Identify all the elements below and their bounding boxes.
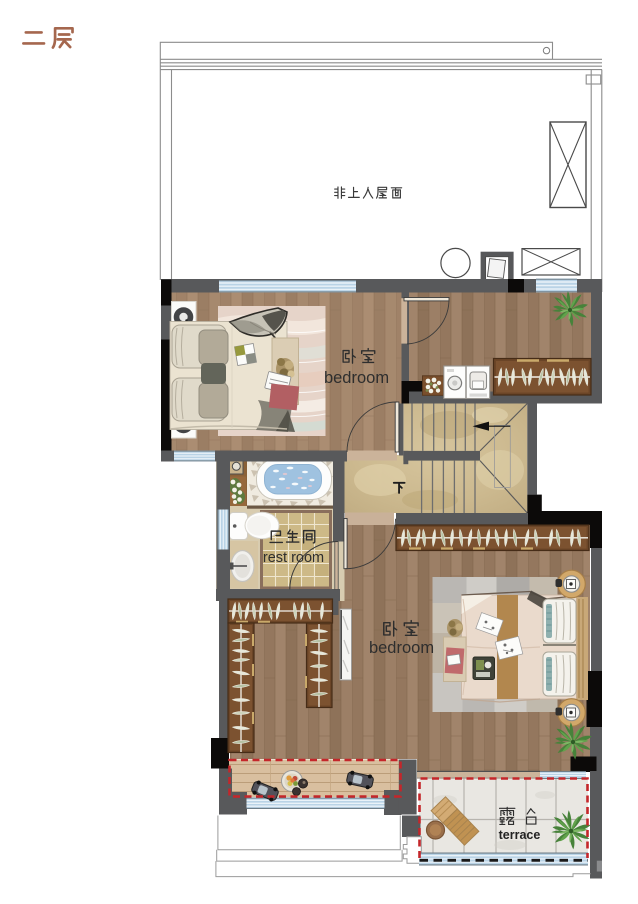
svg-text:rest room: rest room xyxy=(263,550,324,566)
svg-text:bedroom: bedroom xyxy=(369,639,434,657)
svg-text:terrace: terrace xyxy=(499,828,541,842)
svg-text:bedroom: bedroom xyxy=(324,369,389,387)
